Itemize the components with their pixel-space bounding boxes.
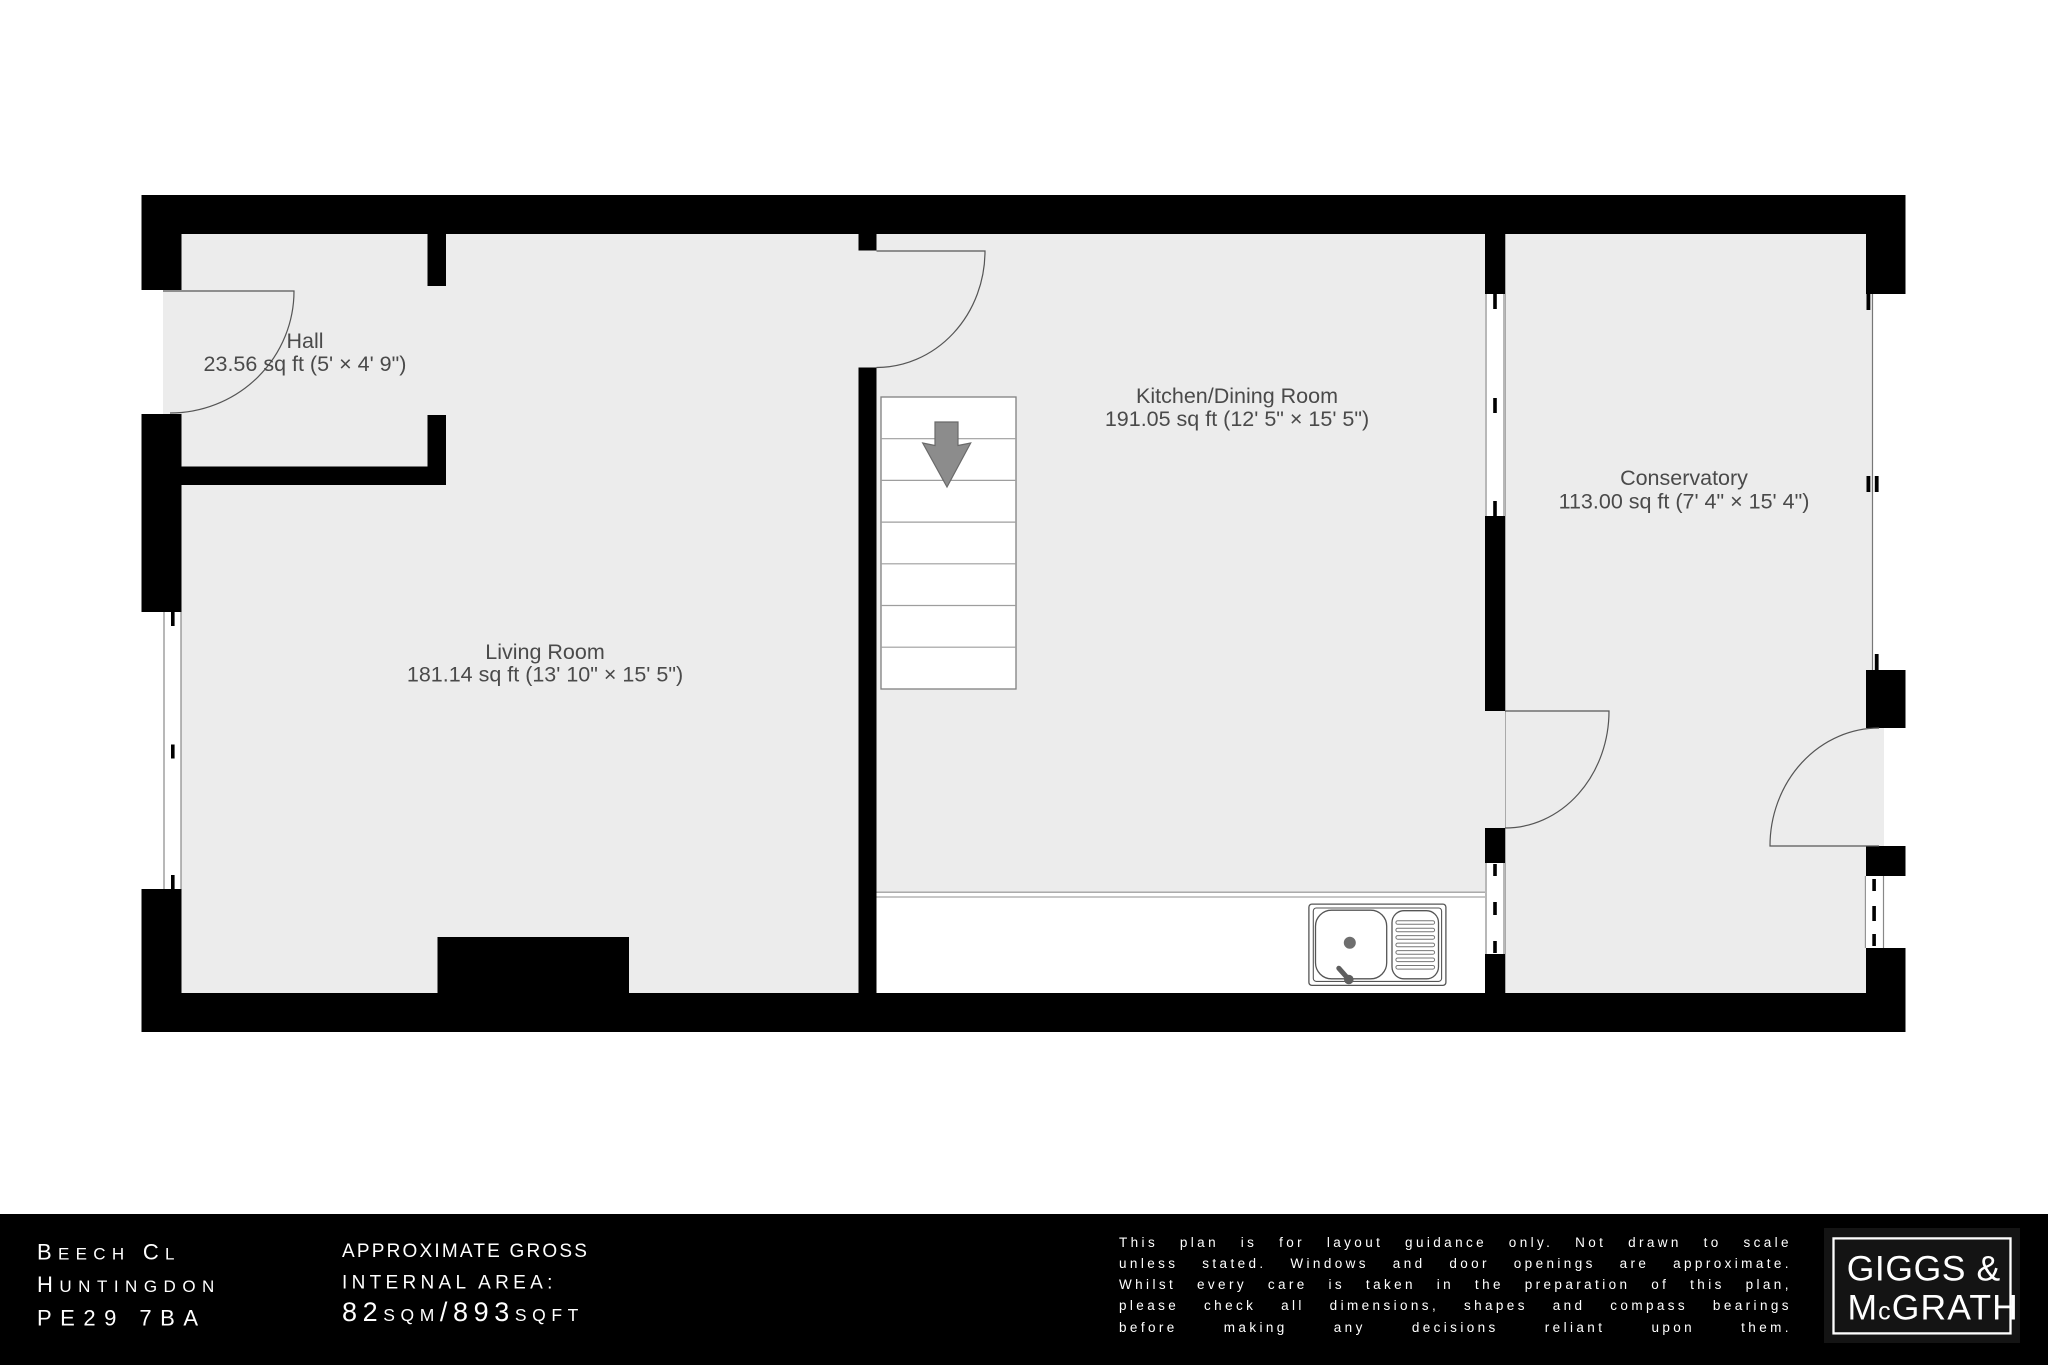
svg-text:GIGGS &: GIGGS & [1847,1249,2001,1289]
svg-text:McGRATH: McGRATH [1848,1288,2019,1328]
svg-text:Hall: Hall [286,329,323,353]
svg-text:HUNTINGDON: HUNTINGDON [37,1272,221,1297]
svg-text:BEECH CL: BEECH CL [37,1239,181,1264]
svg-text:191.05 sq ft (12' 5" × 15' 5"): 191.05 sq ft (12' 5" × 15' 5") [1105,407,1369,431]
svg-text:181.14 sq ft (13' 10" × 15' 5": 181.14 sq ft (13' 10" × 15' 5") [407,663,683,687]
svg-text:82SQM/893SQFT: 82SQM/893SQFT [342,1297,584,1327]
svg-text:Living Room: Living Room [485,640,605,664]
svg-text:APPROXIMATE GROSS: APPROXIMATE GROSS [342,1240,589,1261]
svg-text:23.56 sq ft (5' × 4' 9"): 23.56 sq ft (5' × 4' 9") [204,352,407,376]
svg-text:INTERNAL AREA:: INTERNAL AREA: [342,1272,557,1293]
svg-text:PE29 7BA: PE29 7BA [37,1305,207,1330]
svg-text:113.00 sq ft (7' 4" × 15' 4"): 113.00 sq ft (7' 4" × 15' 4") [1559,490,1810,514]
svg-text:Conservatory: Conservatory [1620,466,1748,490]
svg-text:Kitchen/Dining Room: Kitchen/Dining Room [1136,384,1338,408]
